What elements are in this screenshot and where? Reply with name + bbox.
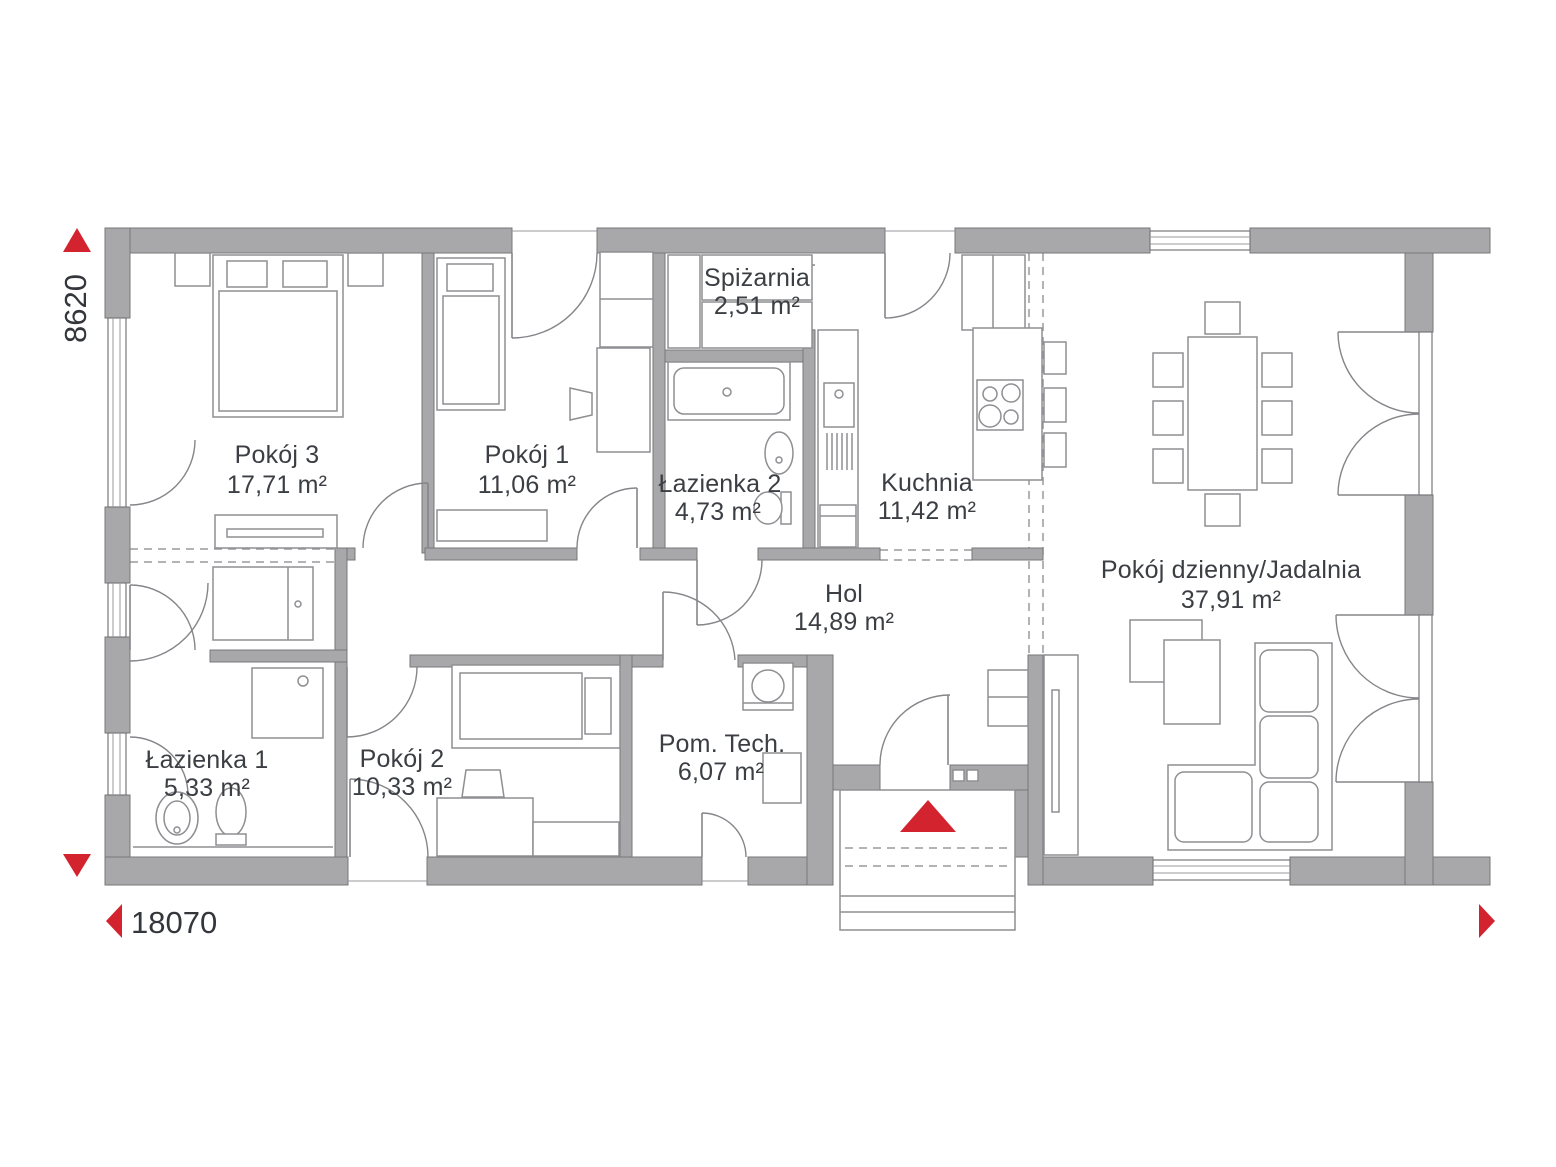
toilet-tank [216, 834, 246, 845]
dim-height-label: 8620 [58, 274, 93, 343]
dining-chair [1262, 449, 1292, 483]
bathtub-inner [674, 368, 784, 414]
tv-unit [1044, 655, 1078, 855]
nightstand [175, 253, 210, 286]
room-label-hol: Hol [825, 580, 863, 608]
dining-chair [1205, 302, 1240, 334]
pillow [447, 264, 493, 291]
room-label-lazienka2: Łazienka 2 [659, 470, 782, 498]
kitchen-island [973, 328, 1042, 480]
room-label-dzienny: Pokój dzienny/Jadalnia [1101, 556, 1361, 584]
tech-cabinet [763, 753, 801, 803]
chair [462, 770, 504, 797]
room-area-hol: 14,89 m² [794, 608, 894, 636]
floor-plan-page: 8620 18070 Pokój 3 17,71 m² Pokój 1 11,0… [0, 0, 1556, 1167]
floor-plan-drawing: 8620 18070 Pokój 3 17,71 m² Pokój 1 11,0… [0, 0, 1556, 1167]
room-area-lazienka1: 5,33 m² [164, 774, 250, 802]
room-label-pokoj2: Pokój 2 [360, 745, 445, 773]
nightstand [348, 253, 383, 286]
bar-stool [1044, 433, 1066, 467]
room-area-lazienka2: 4,73 m² [675, 498, 761, 526]
dining-chair [1153, 353, 1183, 387]
sink [765, 432, 793, 474]
pillow [585, 678, 611, 734]
desk-return [533, 822, 619, 856]
dim-arrow-down [63, 854, 91, 877]
room-area-kuchnia: 11,42 m² [878, 497, 976, 525]
dim-width-label: 18070 [131, 905, 217, 940]
entrance-porch [840, 790, 1015, 930]
bar-stool [1044, 388, 1066, 422]
dining-table [1188, 337, 1257, 490]
hall-closet [988, 670, 1028, 726]
bar-stool [1044, 342, 1066, 374]
sofa-cushion [1260, 650, 1318, 712]
chair [570, 388, 592, 420]
pantry-shelf [668, 255, 700, 348]
coffee-table [1164, 640, 1220, 724]
dining-chair [1262, 353, 1292, 387]
mattress [460, 673, 582, 739]
sofa-chaise [1175, 772, 1252, 842]
room-area-spizarnia: 2,51 m² [714, 292, 800, 320]
room-label-lazienka1: Łazienka 1 [146, 746, 269, 774]
pillow [227, 261, 267, 287]
sofa-cushion [1260, 782, 1318, 842]
room-label-pokoj3: Pokój 3 [235, 441, 320, 469]
room-area-pokoj1: 11,06 m² [478, 471, 576, 499]
dining-chair [1153, 449, 1183, 483]
room-label-spizarnia: Spiżarnia [704, 264, 810, 292]
dining-chair [1205, 494, 1240, 526]
room-area-pomtech: 6,07 m² [678, 758, 764, 786]
desk [597, 348, 650, 452]
room-label-kuchnia: Kuchnia [881, 469, 973, 497]
shower [252, 668, 323, 738]
dimension-horizontal: 18070 [106, 904, 1495, 940]
room-area-pokoj2: 10,33 m² [352, 773, 452, 801]
room-label-pomtech: Pom. Tech. [659, 730, 786, 758]
dresser [437, 510, 547, 541]
dim-arrow-up [63, 228, 91, 252]
sofa-cushion [1260, 716, 1318, 778]
dining-chair [1262, 401, 1292, 435]
pillow [283, 261, 327, 287]
dining-chair [1153, 401, 1183, 435]
room-label-pokoj1: Pokój 1 [485, 441, 570, 469]
hall-cabinet [213, 567, 313, 640]
room-area-dzienny: 37,91 m² [1181, 586, 1281, 614]
dimension-vertical: 8620 [58, 228, 93, 877]
dim-arrow-right [1479, 904, 1495, 938]
dishwasher [820, 505, 856, 547]
desk [437, 798, 533, 856]
wardrobe [215, 515, 337, 548]
dim-arrow-left [106, 904, 122, 938]
room-area-pokoj3: 17,71 m² [227, 471, 327, 499]
